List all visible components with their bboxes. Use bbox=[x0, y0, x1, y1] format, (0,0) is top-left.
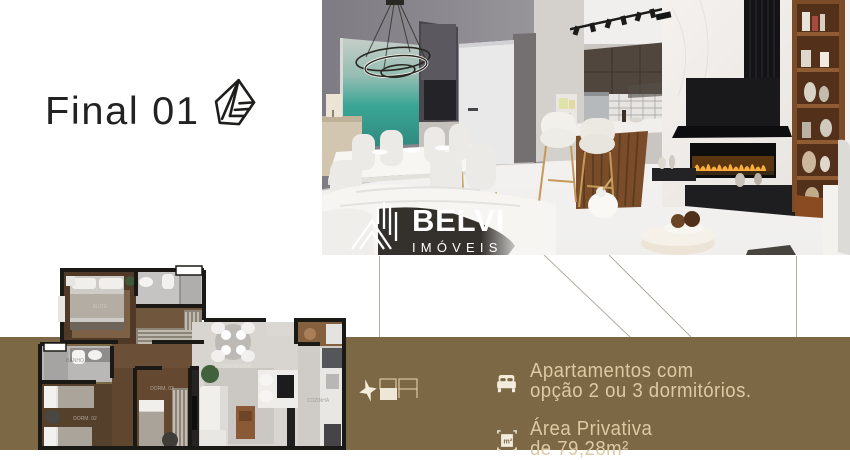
svg-text:COZINHA: COZINHA bbox=[307, 398, 330, 404]
svg-text:ESTAR/JANTAR: ESTAR/JANTAR bbox=[215, 364, 252, 370]
svg-text:IMÓVEIS: IMÓVEIS bbox=[412, 240, 503, 255]
svg-text:BANHO: BANHO bbox=[66, 358, 84, 364]
svg-text:BELVI: BELVI bbox=[412, 203, 505, 238]
svg-text:SUITE: SUITE bbox=[93, 304, 108, 310]
svg-text:DORM. 02: DORM. 02 bbox=[73, 416, 97, 422]
svg-text:DORM. 03: DORM. 03 bbox=[150, 386, 174, 392]
svg-text:m²: m² bbox=[503, 437, 512, 446]
